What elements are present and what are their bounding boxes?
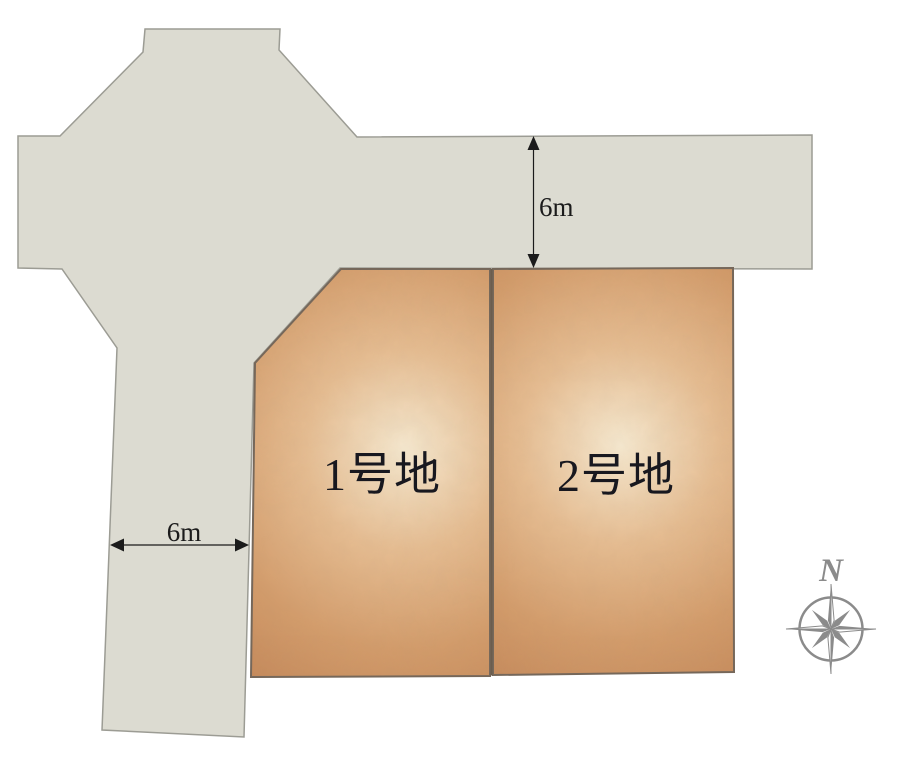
compass-north-label: N: [818, 553, 844, 589]
compass-rose-icon: N: [786, 553, 876, 674]
dimension-label-road-top: 6m: [539, 192, 574, 222]
dimension-label-road-left: 6m: [167, 517, 202, 547]
lot-2-label: 2号地: [557, 450, 675, 501]
lot-layout-diagram: 6m 6m 1号地 2号地 N: [0, 0, 900, 765]
site-plan-canvas: 6m 6m 1号地 2号地 N: [0, 0, 900, 765]
lot-1-label: 1号地: [323, 449, 441, 500]
